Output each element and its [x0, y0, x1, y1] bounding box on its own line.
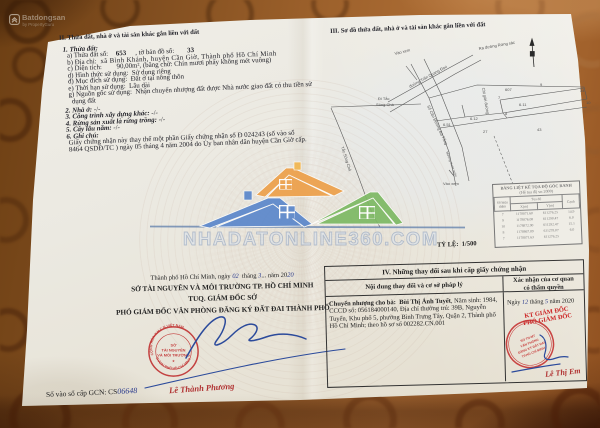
svg-text:Chỉ giới đường: Chỉ giới đường — [481, 87, 491, 114]
svg-text:Ra đường Rừng sác: Ra đường Rừng sác — [478, 40, 515, 51]
svg-text:VÀ MÔI TRƯỜNG: VÀ MÔI TRƯỜNG — [157, 353, 189, 358]
svg-text:Vào xem: Vào xem — [394, 47, 411, 56]
svg-text:34: 34 — [580, 88, 585, 93]
svg-text:7: 7 — [498, 95, 501, 100]
svg-text:Sông Chà: Sông Chà — [376, 102, 395, 107]
svg-text:6.51: 6.51 — [443, 122, 452, 127]
svg-text:★: ★ — [171, 359, 175, 363]
svg-text:27: 27 — [483, 129, 488, 134]
svg-text:8: 8 — [505, 111, 508, 116]
svg-text:Đi Tắc: Đi Tắc — [378, 96, 389, 101]
svg-text:6.12: 6.12 — [470, 116, 479, 121]
svg-text:10: 10 — [586, 100, 591, 105]
svg-text:6.11: 6.11 — [519, 102, 527, 107]
svg-text:43: 43 — [537, 127, 542, 132]
svg-text:607: 607 — [505, 87, 512, 92]
